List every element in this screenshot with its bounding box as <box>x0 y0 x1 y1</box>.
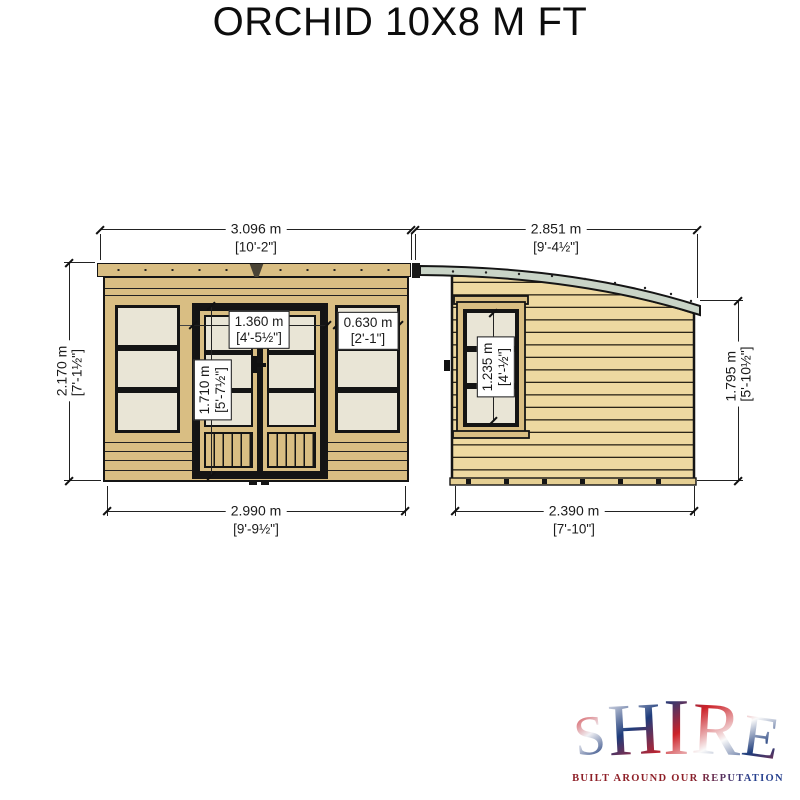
glazing-bar <box>118 345 177 351</box>
side-door-handle <box>444 360 450 371</box>
base-tab <box>249 481 257 485</box>
dim-text-m: 1.235 m <box>480 343 496 392</box>
dim-text-m: 1.710 m <box>197 366 213 415</box>
dim-text-ft: [4'-5½"] <box>235 330 284 346</box>
dim-text-m: 2.170 m <box>54 346 69 397</box>
clapboard-line <box>105 288 407 289</box>
door-panel <box>267 432 316 468</box>
logo-letter: E <box>739 705 786 770</box>
roof-end-cap <box>412 263 420 278</box>
dim-text-m: 3.096 m <box>226 222 287 237</box>
logo-letter: I <box>663 688 692 768</box>
front-window-left <box>115 305 180 433</box>
dim-text-ft: [5'-10½"] <box>738 346 753 401</box>
dim-text-ft: [2'-1"] <box>344 331 393 347</box>
page-title: ORCHID 10X8 M FT <box>0 0 800 45</box>
side-elevation-svg <box>408 258 708 488</box>
dim-text-ft: [9'-9½"] <box>230 522 282 537</box>
glazing-bar <box>269 388 314 393</box>
glazing-bar <box>206 350 251 355</box>
shire-logo-letters: S H I R E <box>556 688 800 772</box>
dim-text-ft: [10'-2"] <box>232 240 280 255</box>
dim-text-m: 1.360 m <box>235 314 284 330</box>
dim-text-m: 0.630 m <box>344 315 393 331</box>
door-handle <box>256 363 266 367</box>
shire-logo: S H I R E BUILT AROUND OUR REPUTATION <box>556 688 800 784</box>
logo-letter: S <box>571 706 611 766</box>
dim-text-m: 2.851 m <box>526 222 587 237</box>
base-bearers <box>450 478 696 485</box>
dim-text-m: 1.795 m <box>723 346 738 401</box>
glazing-bar <box>269 350 314 355</box>
clapboard-line <box>105 295 407 296</box>
dim-text-ft: [5'-7½"] <box>213 366 229 415</box>
side-elevation <box>408 258 708 488</box>
logo-letter: H <box>606 692 665 769</box>
logo-tagline: BUILT AROUND OUR REPUTATION <box>556 773 800 784</box>
drawing-canvas: 3.096 m [10'-2"] 2.990 m [9'-9½"] 2.170 … <box>0 0 800 800</box>
glazing-bar <box>118 387 177 393</box>
window-panes <box>118 308 177 430</box>
dim-text-m: 2.990 m <box>226 504 287 519</box>
dim-text-ft: [9'-4½"] <box>530 240 582 255</box>
logo-letter: R <box>690 692 745 769</box>
dim-text-ft: [4'-½"] <box>496 343 512 392</box>
dim-text-m: 2.390 m <box>544 504 605 519</box>
glazing-bar <box>338 387 397 393</box>
base-tab <box>261 481 269 485</box>
dim-text-ft: [7'-1½"] <box>69 346 84 397</box>
dim-text-ft: [7'-10"] <box>550 522 598 537</box>
